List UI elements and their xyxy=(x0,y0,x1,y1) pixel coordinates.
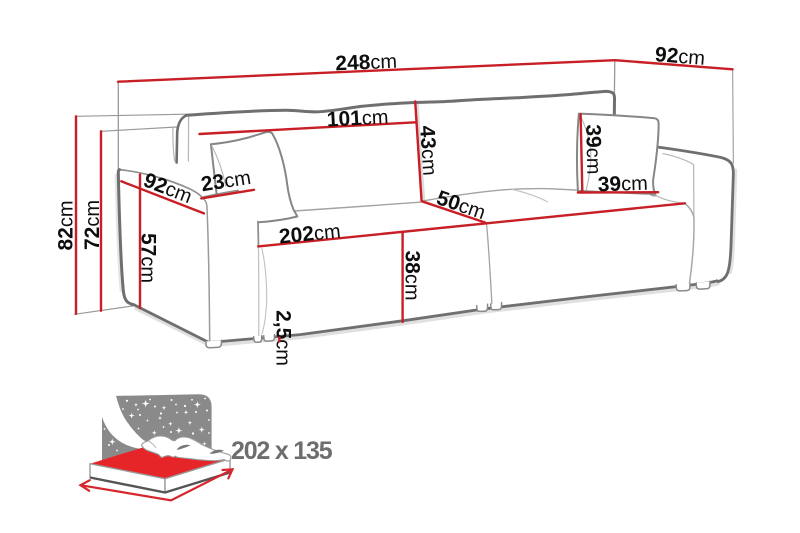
svg-text:72cm: 72cm xyxy=(81,200,104,250)
svg-text:202 x 135: 202 x 135 xyxy=(231,437,333,465)
svg-text:82cm: 82cm xyxy=(55,200,78,250)
svg-text:101cm: 101cm xyxy=(326,105,389,131)
svg-text:57cm: 57cm xyxy=(136,233,159,283)
svg-text:2,5cm: 2,5cm xyxy=(272,310,295,366)
svg-text:39cm: 39cm xyxy=(597,172,648,197)
svg-text:248cm: 248cm xyxy=(335,50,398,76)
svg-text:92cm: 92cm xyxy=(654,43,706,70)
svg-text:39cm: 39cm xyxy=(581,124,605,175)
svg-text:43cm: 43cm xyxy=(415,125,441,176)
svg-text:38cm: 38cm xyxy=(401,250,424,300)
